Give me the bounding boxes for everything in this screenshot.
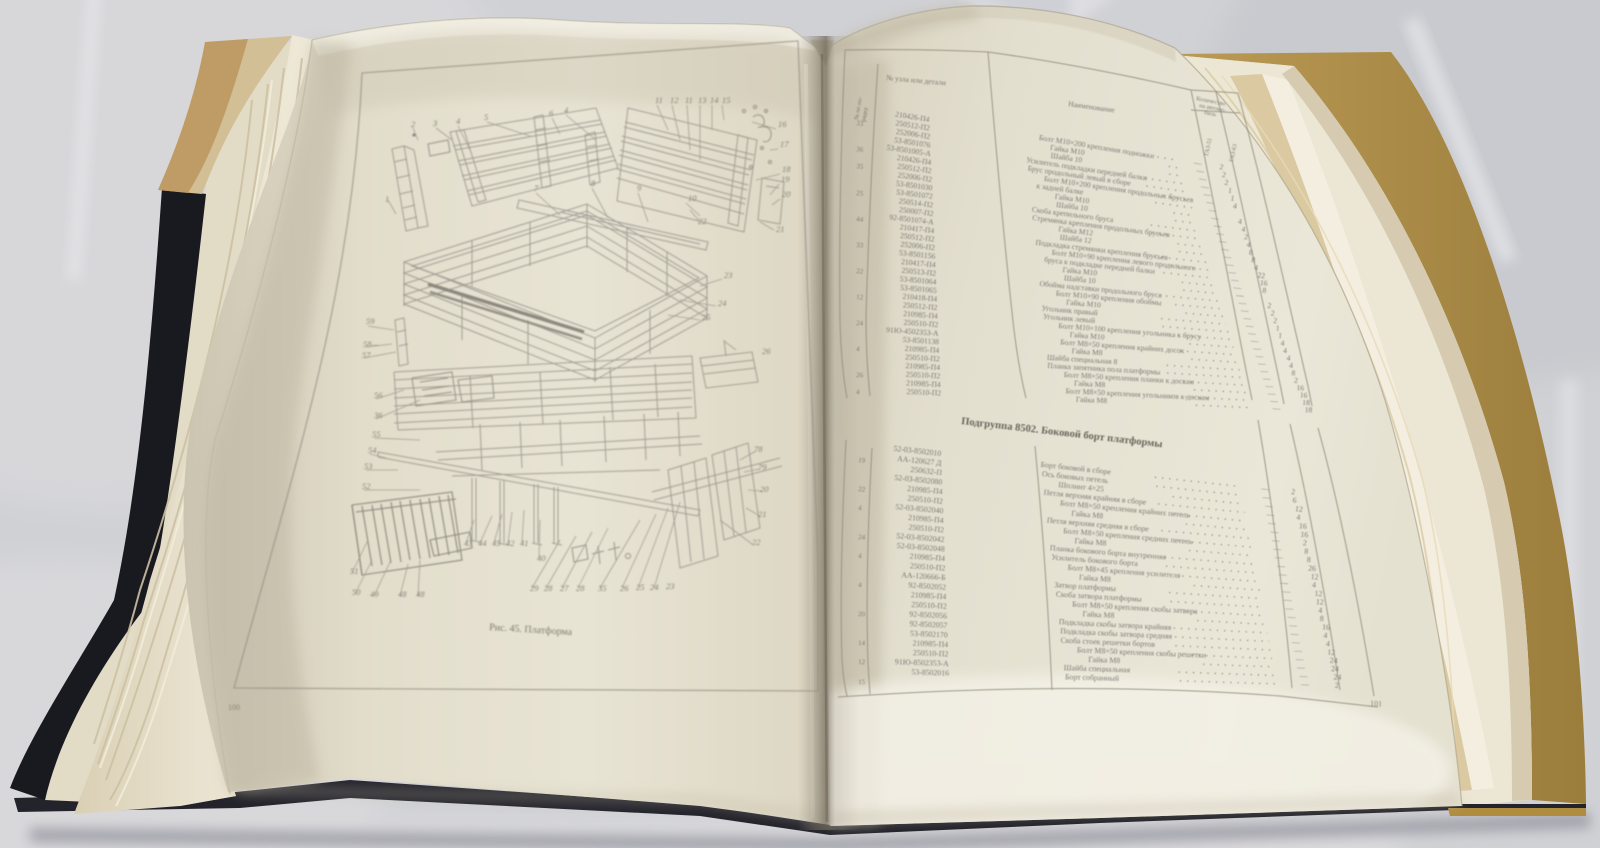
svg-text:23: 23 — [724, 270, 733, 280]
svg-text:25: 25 — [702, 312, 711, 322]
svg-text:35: 35 — [597, 583, 607, 593]
svg-text:12: 12 — [856, 293, 864, 302]
svg-text:19: 19 — [858, 456, 866, 465]
svg-text:55: 55 — [372, 429, 381, 439]
svg-text:57: 57 — [362, 350, 371, 360]
svg-text:Борт собранный: Борт собранный — [1065, 672, 1119, 683]
svg-text:27: 27 — [560, 583, 569, 593]
svg-text:24: 24 — [856, 319, 864, 328]
svg-text:51: 51 — [350, 566, 359, 576]
svg-text:13: 13 — [698, 95, 707, 105]
svg-text:48: 48 — [398, 589, 407, 599]
svg-text:3: 3 — [432, 118, 437, 128]
svg-text:12: 12 — [670, 95, 679, 105]
svg-text:16: 16 — [778, 119, 787, 129]
svg-text:23: 23 — [666, 581, 675, 591]
svg-text:22: 22 — [752, 537, 761, 547]
svg-text:26: 26 — [620, 583, 629, 593]
svg-text:58—: 58— — [363, 339, 380, 349]
svg-text:44: 44 — [478, 538, 487, 548]
svg-text:56: 56 — [374, 390, 383, 400]
svg-text:11: 11 — [655, 95, 663, 105]
svg-text:33: 33 — [856, 241, 864, 250]
svg-text:28: 28 — [544, 583, 553, 593]
svg-text:26: 26 — [762, 346, 771, 356]
svg-text:50: 50 — [352, 587, 361, 597]
svg-text:21: 21 — [776, 224, 785, 234]
svg-text:14: 14 — [858, 639, 866, 647]
svg-text:18: 18 — [782, 164, 791, 174]
svg-text:15: 15 — [858, 678, 866, 686]
svg-text:91Ю-8502353-А: 91Ю-8502353-А — [895, 657, 950, 668]
svg-text:100: 100 — [228, 703, 240, 712]
svg-text:20: 20 — [858, 610, 866, 618]
svg-text:20: 20 — [760, 484, 769, 494]
svg-text:36: 36 — [373, 410, 383, 420]
svg-text:24: 24 — [650, 582, 659, 592]
svg-text:43: 43 — [464, 538, 473, 548]
svg-text:40: 40 — [537, 553, 546, 563]
svg-text:28: 28 — [576, 583, 585, 593]
svg-text:2: 2 — [1335, 681, 1339, 690]
svg-text:19: 19 — [781, 174, 790, 184]
svg-text:250510-П2: 250510-П2 — [906, 387, 941, 398]
svg-text:79: 79 — [758, 462, 767, 472]
svg-text:45: 45 — [492, 538, 501, 548]
svg-text:22: 22 — [858, 485, 866, 494]
svg-text:41: 41 — [520, 538, 529, 548]
svg-text:15: 15 — [722, 95, 731, 105]
svg-text:5: 5 — [484, 112, 488, 122]
svg-text:14: 14 — [710, 95, 719, 105]
svg-text:22: 22 — [856, 267, 864, 276]
svg-text:24: 24 — [718, 298, 727, 308]
svg-text:78: 78 — [754, 444, 763, 454]
svg-text:—: — — [1300, 680, 1309, 689]
svg-text:26: 26 — [856, 371, 864, 379]
svg-text:53: 53 — [364, 461, 373, 471]
svg-text:10: 10 — [688, 193, 697, 203]
svg-text:1: 1 — [385, 194, 389, 204]
svg-text:12: 12 — [858, 658, 866, 666]
svg-text:11: 11 — [685, 95, 693, 105]
svg-text:—: — — [1272, 404, 1281, 413]
svg-text:18: 18 — [1305, 405, 1313, 414]
svg-text:20: 20 — [782, 189, 791, 199]
svg-text:49: 49 — [370, 589, 379, 599]
svg-text:54: 54 — [368, 445, 377, 455]
svg-text:21: 21 — [758, 509, 767, 519]
svg-text:250510-П2: 250510-П2 — [913, 648, 949, 658]
svg-text:25: 25 — [636, 582, 645, 592]
svg-text:29: 29 — [530, 583, 539, 593]
svg-text:Гайка М8: Гайка М8 — [1076, 395, 1108, 405]
svg-text:42: 42 — [506, 538, 515, 548]
svg-text:101: 101 — [1370, 699, 1382, 708]
svg-text:53-8502016: 53-8502016 — [911, 667, 949, 677]
svg-text:48: 48 — [416, 589, 425, 599]
svg-text:59: 59 — [366, 316, 375, 326]
svg-text:17: 17 — [780, 139, 789, 149]
svg-text:22: 22 — [698, 216, 707, 226]
svg-text:24: 24 — [858, 533, 866, 542]
svg-text:52: 52 — [362, 481, 371, 491]
